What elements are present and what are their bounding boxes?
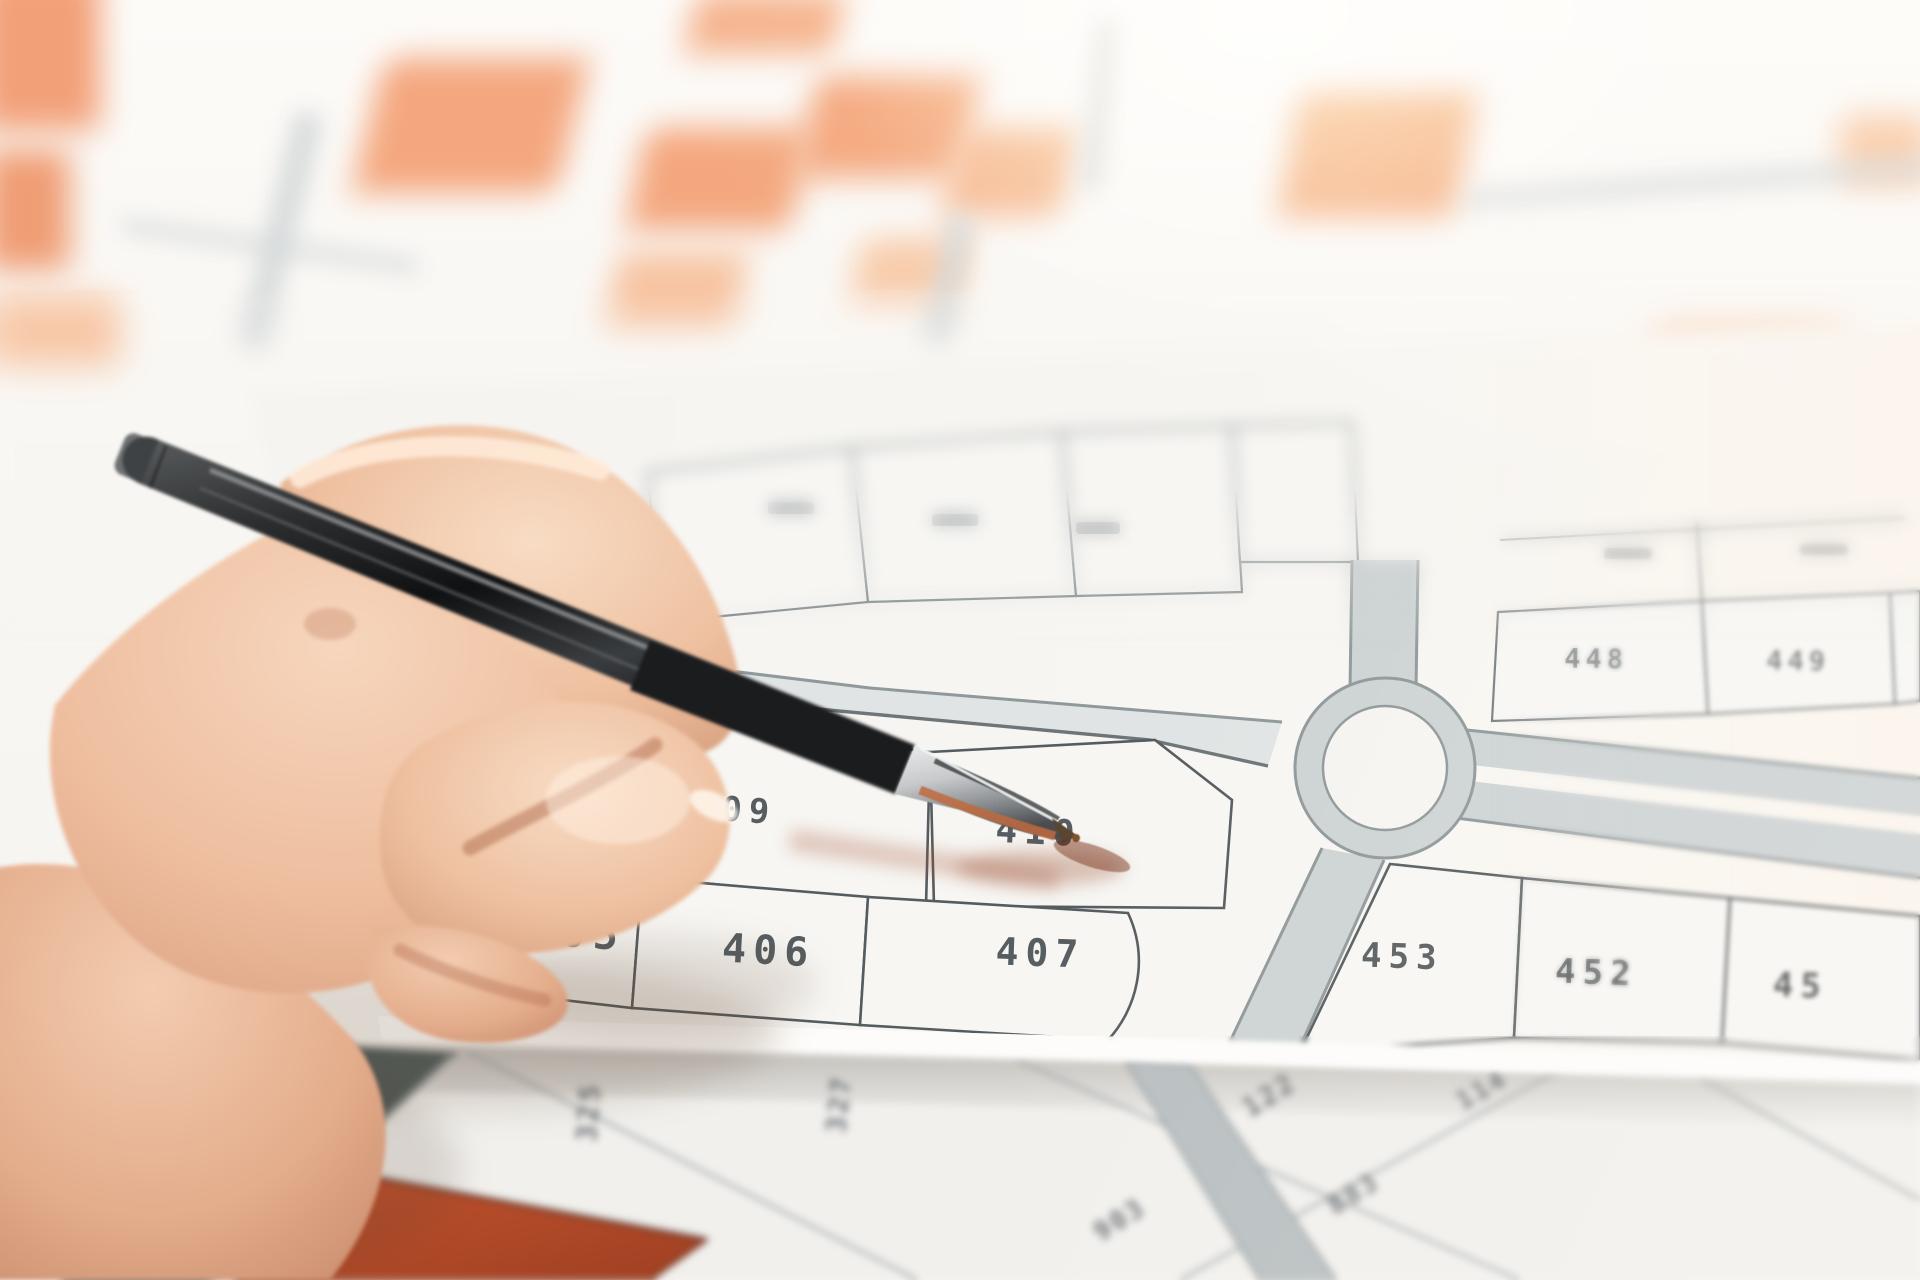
hand-and-pen — [0, 0, 1920, 1280]
thumb-highlight — [546, 756, 690, 844]
photo-scene: 325 327 122 903 883 114 — [0, 0, 1920, 1280]
knuckle-dimple — [304, 608, 356, 640]
thumb — [380, 701, 730, 954]
